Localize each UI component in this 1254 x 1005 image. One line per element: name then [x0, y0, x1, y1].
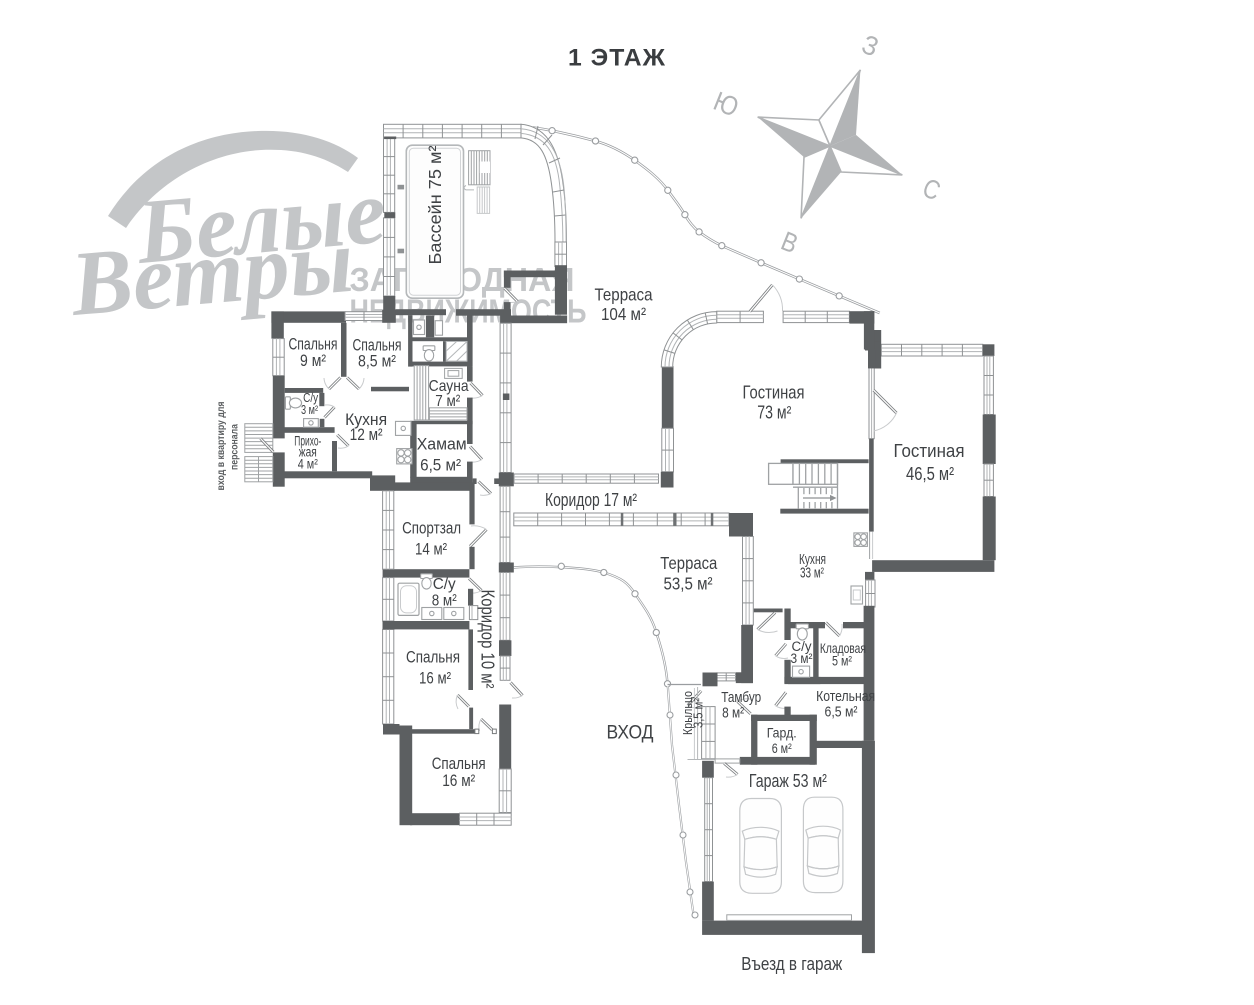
- svg-text:14 м²: 14 м²: [415, 540, 447, 559]
- svg-text:Спальня: Спальня: [289, 336, 338, 354]
- svg-text:104 м²: 104 м²: [601, 304, 646, 324]
- svg-text:Терраса: Терраса: [595, 285, 653, 305]
- svg-text:4 м²: 4 м²: [298, 457, 318, 472]
- svg-text:3,5 м²: 3,5 м²: [692, 698, 706, 728]
- svg-text:16 м²: 16 м²: [442, 771, 475, 790]
- svg-text:Коридор 10 м²: Коридор 10 м²: [478, 590, 498, 689]
- svg-text:Гараж 53 м²: Гараж 53 м²: [749, 770, 827, 791]
- svg-text:8 м²: 8 м²: [432, 593, 458, 610]
- svg-text:Терраса: Терраса: [660, 553, 717, 573]
- svg-text:9 м²: 9 м²: [300, 352, 326, 370]
- svg-text:Спальня: Спальня: [432, 754, 486, 773]
- svg-text:3 м²: 3 м²: [301, 402, 318, 417]
- svg-text:Гард.: Гард.: [767, 725, 797, 741]
- svg-text:Бассейн 75 м²: Бассейн 75 м²: [425, 145, 445, 264]
- svg-text:6,5 м²: 6,5 м²: [420, 455, 461, 474]
- svg-text:3 м²: 3 м²: [791, 651, 813, 666]
- svg-text:53,5 м²: 53,5 м²: [664, 574, 713, 594]
- svg-text:Гостиная: Гостиная: [743, 383, 805, 403]
- svg-text:7 м²: 7 м²: [435, 393, 461, 410]
- svg-text:Въезд в гараж: Въезд в гараж: [741, 953, 843, 974]
- svg-text:ВХОД: ВХОД: [607, 723, 654, 744]
- svg-text:Коридор 17 м²: Коридор 17 м²: [545, 490, 637, 510]
- svg-text:Хамам: Хамам: [417, 435, 467, 454]
- svg-text:46,5 м²: 46,5 м²: [906, 463, 954, 484]
- svg-text:5 м²: 5 м²: [832, 653, 852, 669]
- svg-text:Спальня: Спальня: [406, 647, 460, 666]
- svg-text:1 ЭТАЖ: 1 ЭТАЖ: [568, 45, 666, 72]
- svg-text:Тамбур: Тамбур: [721, 689, 761, 706]
- svg-text:73 м²: 73 м²: [757, 403, 791, 423]
- svg-text:вход в квартиру для: вход в квартиру для: [215, 402, 227, 491]
- svg-text:6,5 м²: 6,5 м²: [825, 704, 858, 721]
- svg-text:12 м²: 12 м²: [350, 425, 383, 444]
- svg-text:8 м²: 8 м²: [722, 705, 744, 722]
- svg-text:8,5 м²: 8,5 м²: [358, 353, 396, 371]
- svg-text:С/у: С/у: [433, 576, 456, 593]
- svg-text:Спортзал: Спортзал: [402, 519, 461, 538]
- svg-text:6 м²: 6 м²: [772, 740, 792, 756]
- svg-text:33 м²: 33 м²: [800, 566, 824, 582]
- svg-text:Гостиная: Гостиная: [894, 440, 965, 461]
- svg-text:16 м²: 16 м²: [419, 669, 451, 688]
- svg-text:персонала: персонала: [229, 424, 241, 470]
